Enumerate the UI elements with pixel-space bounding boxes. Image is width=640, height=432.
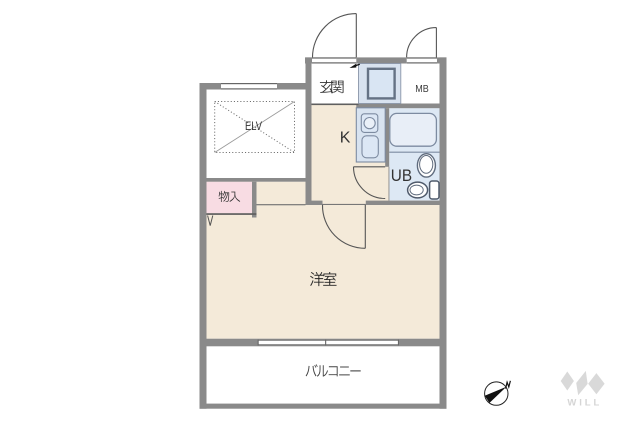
svg-text:ELV: ELV: [245, 119, 262, 133]
svg-text:WILL: WILL: [567, 398, 602, 409]
svg-text:MB: MB: [415, 84, 429, 95]
svg-text:UB: UB: [391, 167, 412, 185]
svg-text:K: K: [340, 129, 351, 146]
